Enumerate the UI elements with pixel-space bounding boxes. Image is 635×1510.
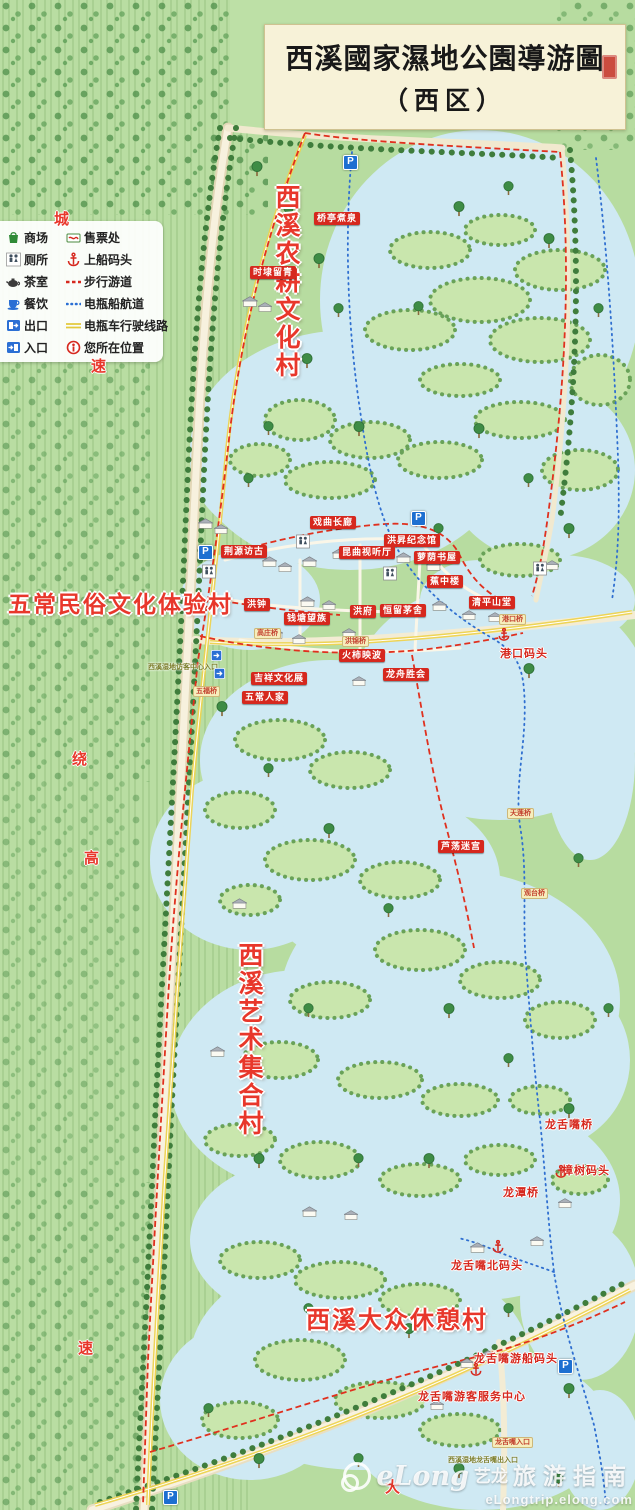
- walking-route-icon: [66, 274, 81, 289]
- wetland-park-map: 西溪國家濕地公園導游圖 （西区） 商场 售票处 厕所 上船码头 茶室 步行游道: [0, 0, 635, 1510]
- parking-icon: P: [411, 511, 426, 526]
- map-title: 西溪國家濕地公園導游圖: [285, 37, 604, 77]
- place-name-text: 港口码头: [500, 645, 548, 661]
- boat-dock-icon: [491, 1239, 505, 1254]
- legend-item-walking-route: 步行游道: [66, 273, 168, 290]
- poi-label: 恒留茅舍: [380, 604, 426, 617]
- watermark-brand-cn: 艺龙: [474, 1468, 508, 1485]
- bridge-label: 天莲桥: [507, 808, 534, 819]
- map-subtitle: （西区）: [383, 81, 507, 117]
- bridge-label: 观台桥: [521, 888, 548, 899]
- watermark-guide: 旅游指南: [513, 1465, 633, 1488]
- poi-label: 五常人家: [242, 691, 288, 704]
- exit-gate-icon: [211, 648, 222, 659]
- parking-icon: P: [198, 545, 213, 560]
- toilet-icon: [6, 252, 21, 267]
- boat-dock-icon: [554, 1164, 568, 1179]
- current-location-icon: [66, 340, 81, 355]
- poi-label: 吉祥文化展: [251, 672, 307, 685]
- shop-icon: [6, 230, 21, 245]
- road-name-char: 速: [91, 355, 106, 376]
- poi-label: 蕉中楼: [427, 575, 463, 588]
- bridge-label: 港口桥: [499, 614, 526, 625]
- legend-item-dining: 餐饮: [6, 295, 66, 312]
- boat-dock-icon: [66, 252, 81, 267]
- title-seal: [602, 55, 617, 79]
- bridge-label: 高庄桥: [254, 628, 281, 639]
- tea-room-icon: [6, 274, 21, 289]
- poi-label: 时埭留青: [250, 266, 296, 279]
- road-name-char: 城: [54, 208, 69, 229]
- bridge-label: 五福桥: [193, 686, 220, 697]
- road-name-char: 高: [84, 847, 99, 868]
- place-name-text: 龙潭桥: [503, 1184, 539, 1200]
- poi-label: 萝荫书屋: [414, 551, 460, 564]
- place-name-text: 樟树码头: [562, 1162, 610, 1178]
- parking-icon: P: [343, 155, 358, 170]
- place-name-text: 龙舌嘴游船码头: [474, 1350, 558, 1366]
- legend-box: 商场 售票处 厕所 上船码头 茶室 步行游道 餐饮 电瓶船航道: [0, 221, 163, 362]
- place-name-text: 龙舌嘴游客服务中心: [418, 1388, 526, 1404]
- entrance-icon: [6, 340, 21, 355]
- ticket-office-icon: [66, 230, 81, 245]
- bridge-label: 洪锦桥: [342, 636, 369, 647]
- legend-item-cart-route: 电瓶车行驶线路: [66, 317, 168, 334]
- legend-item-current-location: 您所在位置: [66, 339, 168, 356]
- legend-item-ticket-office: 售票处: [66, 229, 168, 246]
- poi-label: 芦荡迷宫: [438, 840, 484, 853]
- bridge-label: 龙舌嘴入口: [492, 1437, 533, 1448]
- road-name-char: 绕: [72, 748, 87, 769]
- village-label-art-collection: 西溪艺术集合村: [231, 942, 267, 1138]
- poi-label: 戏曲长廊: [310, 516, 356, 529]
- poi-label: 桥亭煮泉: [314, 212, 360, 225]
- parking-icon: P: [558, 1359, 573, 1374]
- exit-icon: [6, 318, 21, 333]
- dining-icon: [6, 296, 21, 311]
- village-label-public-leisure: 西溪大众休憩村: [306, 1300, 488, 1335]
- poi-label: 昆曲视听厅: [339, 546, 395, 559]
- legend-item-shop: 商场: [6, 229, 66, 246]
- elong-logo-icon: [343, 1462, 371, 1490]
- poi-label: 龙舟胜会: [383, 668, 429, 681]
- toilet-icon: [202, 564, 216, 579]
- watermark: eLong 艺龙 旅游指南 eLongtrip.elong.com: [343, 1462, 633, 1506]
- legend-item-toilet: 厕所: [6, 251, 66, 268]
- toilet-icon: [533, 561, 547, 576]
- legend-item-boat-route: 电瓶船航道: [66, 295, 168, 312]
- poi-label: 荆源访古: [221, 545, 267, 558]
- entrance-note-label: 西溪湿地访客中心入口: [148, 662, 218, 672]
- watermark-brand: eLong: [376, 1463, 469, 1490]
- poi-label: 清平山堂: [469, 596, 515, 609]
- cart-route-icon: [66, 318, 81, 333]
- watermark-url: eLongtrip.elong.com: [343, 1493, 633, 1506]
- village-label-wuchang-folk-culture: 五常民俗文化体验村: [8, 585, 233, 619]
- legend-item-exit: 出口: [6, 317, 66, 334]
- exit-gate-icon: [214, 666, 225, 677]
- parking-icon: P: [163, 1490, 178, 1505]
- toilet-icon: [296, 534, 310, 549]
- poi-label: 洪府: [350, 605, 376, 618]
- poi-label: 洪钟: [244, 598, 270, 611]
- boat-dock-icon: [497, 627, 511, 642]
- poi-label: 钱塘望族: [284, 612, 330, 625]
- village-label-farming-culture: 西溪农耕文化村: [268, 184, 304, 380]
- place-name-text: 龙舌嘴桥: [545, 1116, 593, 1132]
- road-name-char: 速: [78, 1337, 93, 1358]
- boat-route-icon: [66, 296, 81, 311]
- legend-item-tea-room: 茶室: [6, 273, 66, 290]
- map-title-box: 西溪國家濕地公園導游圖 （西区）: [264, 24, 626, 130]
- boat-dock-icon: [469, 1362, 483, 1377]
- poi-label: 火柿映波: [339, 649, 385, 662]
- legend-item-entrance: 入口: [6, 339, 66, 356]
- toilet-icon: [383, 566, 397, 581]
- place-name-text: 龙舌嘴北码头: [451, 1257, 523, 1273]
- legend-item-boat-dock: 上船码头: [66, 251, 168, 268]
